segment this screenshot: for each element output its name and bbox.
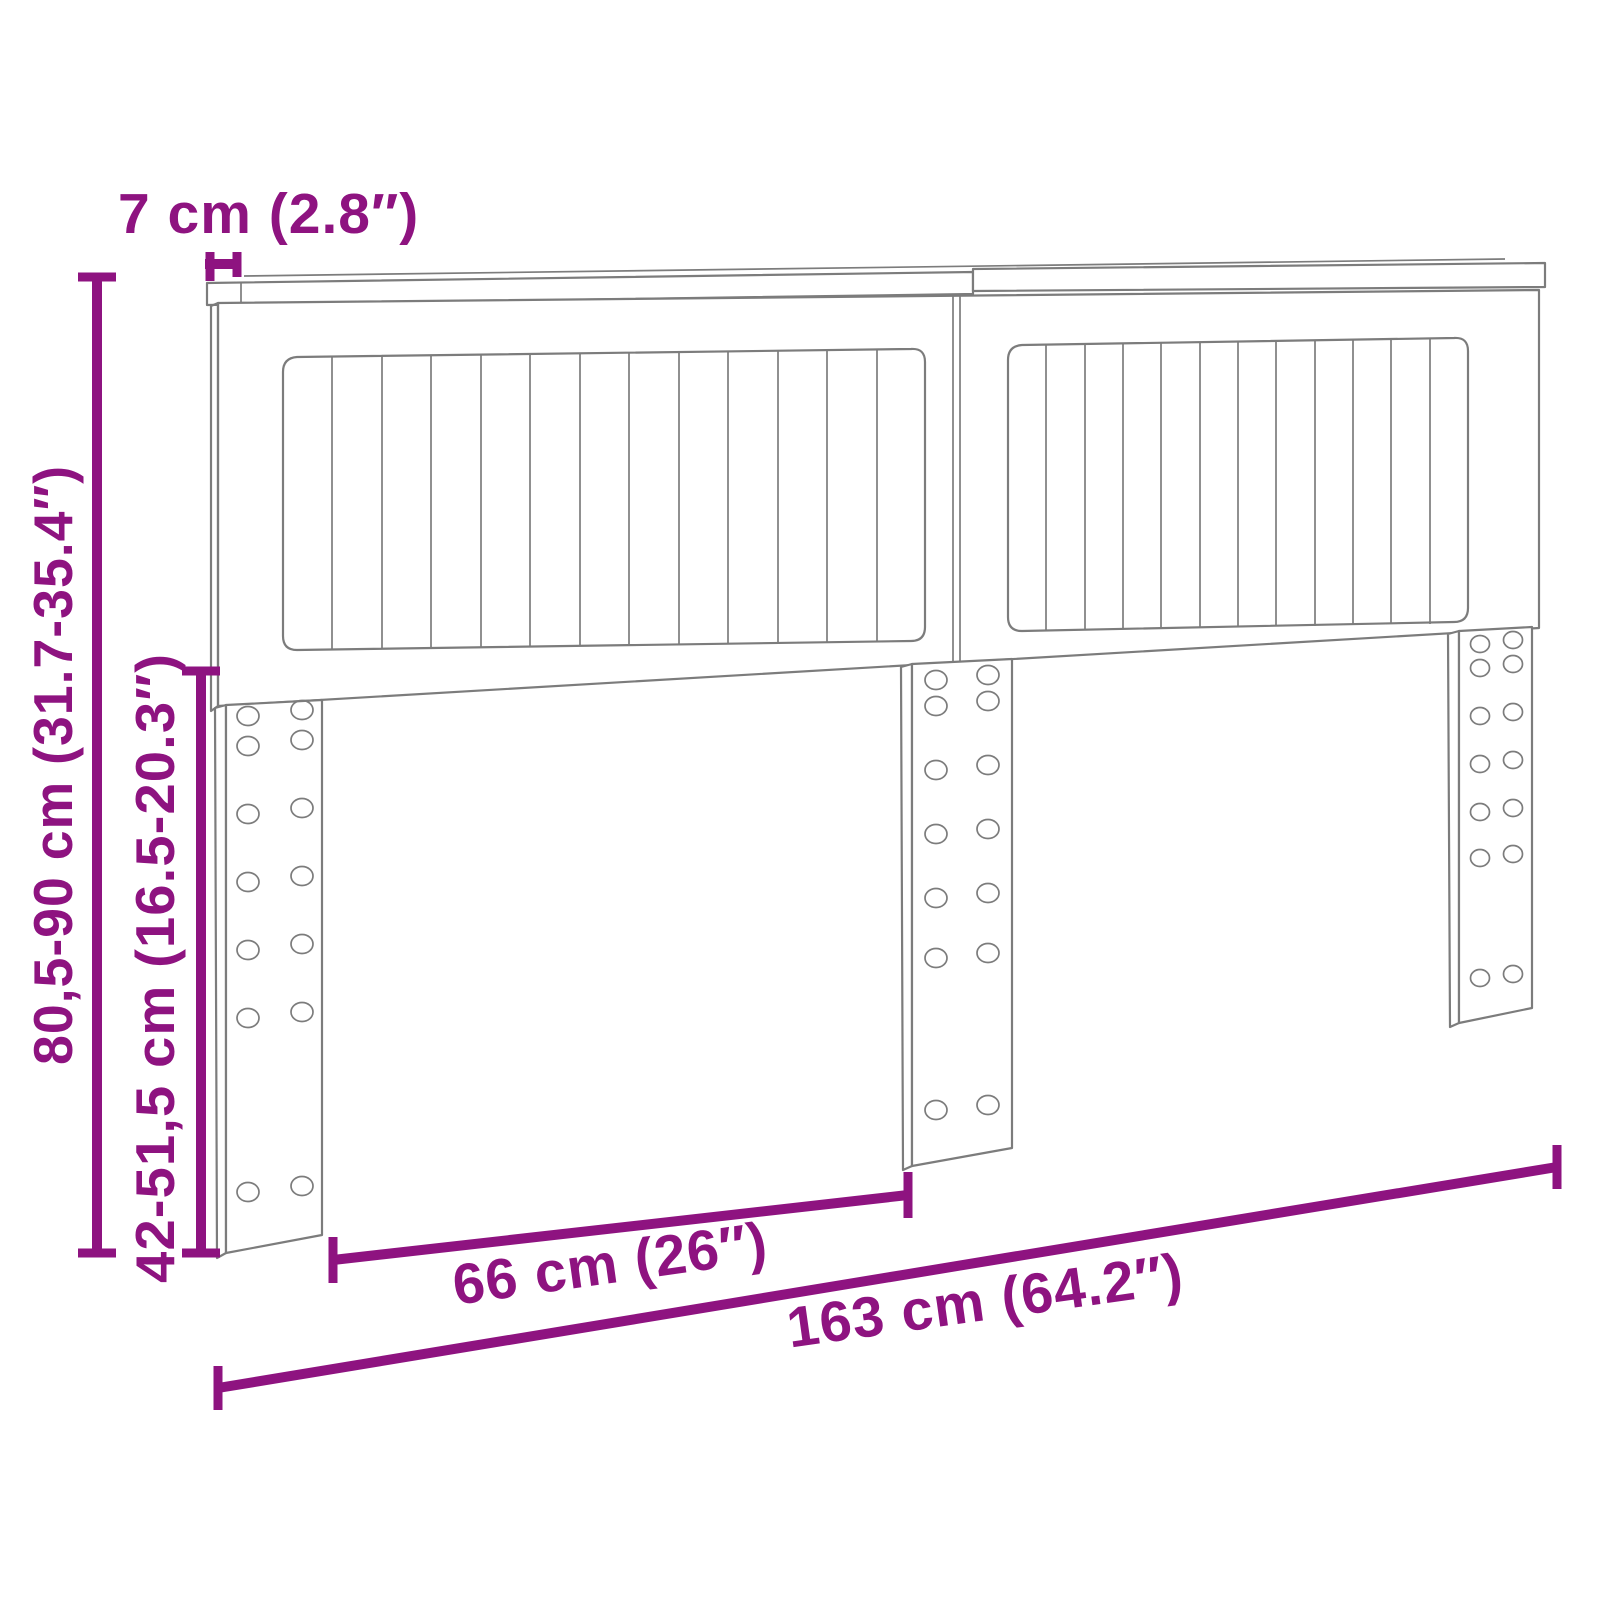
leg-right bbox=[1448, 627, 1532, 1027]
dimension-diagram-page: 7 cm (2.8″) 80,5-90 cm (31.7-35.4″) 42-5… bbox=[0, 0, 1600, 1600]
leg-left-side-face bbox=[215, 705, 226, 1258]
top-board-right-face bbox=[973, 263, 1545, 291]
leg-middle-side-face bbox=[901, 664, 912, 1170]
dimension-board-thickness bbox=[205, 252, 241, 281]
label-leg-height: 42-51,5 cm (16.5-20.3″) bbox=[124, 653, 186, 1283]
leg-middle-front-face bbox=[912, 659, 1012, 1166]
label-board-thickness: 7 cm (2.8″) bbox=[118, 182, 419, 246]
leg-left-front-face bbox=[226, 700, 322, 1253]
leg-middle bbox=[901, 659, 1012, 1170]
leg-right-front-face bbox=[1459, 627, 1532, 1023]
headboard-dimension-diagram: 7 cm (2.8″) 80,5-90 cm (31.7-35.4″) 42-5… bbox=[0, 0, 1600, 1600]
leg-right-side-face bbox=[1448, 631, 1459, 1027]
headboard-drawing bbox=[207, 259, 1545, 1258]
dimension-overall-width bbox=[218, 1145, 1557, 1410]
panel-front-face bbox=[218, 290, 1539, 706]
leg-left bbox=[215, 700, 322, 1258]
label-overall-height: 80,5-90 cm (31.7-35.4″) bbox=[22, 465, 84, 1065]
panel-side-face bbox=[211, 303, 218, 711]
